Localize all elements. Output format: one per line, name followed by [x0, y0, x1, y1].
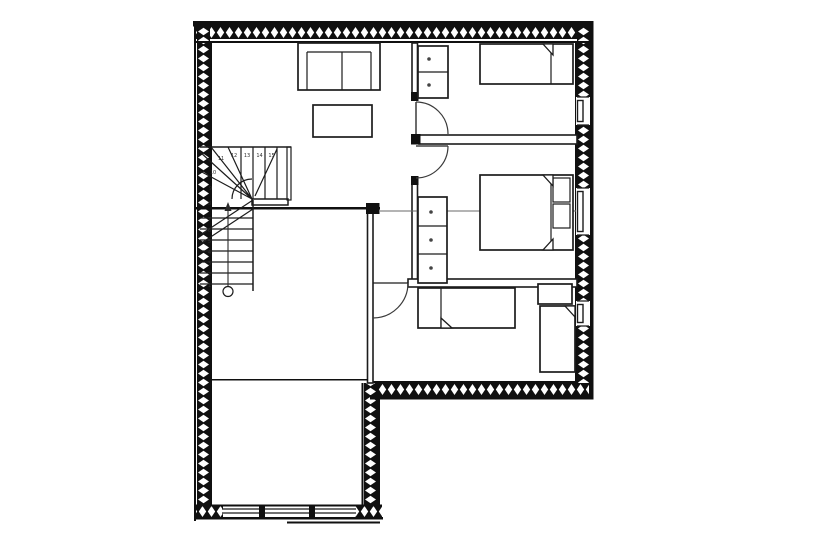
- bedroom-1-furniture: [418, 44, 573, 98]
- wardrobe-knob: [429, 238, 433, 242]
- step-number: 5: [208, 239, 211, 245]
- mid-lower-wall-hatch: [364, 383, 378, 506]
- stair-right-edge: [287, 147, 291, 200]
- bottom-right-wall-hatch: [372, 383, 589, 396]
- window-glazing: [578, 101, 584, 122]
- top-wall-outer-edge: [193, 21, 593, 27]
- double-bed: [480, 175, 573, 250]
- left-wall-outer-edge: [194, 21, 196, 521]
- sofa: [298, 43, 380, 90]
- step-number: 3: [208, 261, 211, 267]
- step-number: 11: [218, 156, 224, 162]
- bed-outline: [418, 288, 515, 328]
- door-swing-arc: [416, 102, 448, 134]
- lower-room-top-wall: [196, 207, 380, 210]
- bottom-right-wall-outer-edge: [370, 395, 594, 400]
- window: [576, 188, 590, 235]
- single-bed: [480, 44, 573, 84]
- step-number: 4: [208, 250, 211, 256]
- cabinet: [418, 46, 448, 98]
- bedroom-2-door: [416, 146, 448, 178]
- step-number: 13: [244, 153, 250, 159]
- wall-end-cap: [366, 203, 380, 214]
- bottom-window-glazing: [222, 509, 356, 513]
- wardrobe-knob: [429, 210, 433, 214]
- bottom-window-mullion: [309, 505, 315, 518]
- hallway-wall-lower: [412, 177, 418, 280]
- step-number: 7: [208, 217, 211, 223]
- bottom-window-corner-left-hatch: [196, 505, 223, 518]
- tall-wardrobe: [540, 306, 575, 372]
- bedroom-1-door: [416, 102, 448, 134]
- top-wall-inner-edge: [196, 41, 589, 43]
- wardrobe-outline: [540, 306, 575, 372]
- wardrobe-knob: [429, 266, 433, 270]
- bed-outline: [480, 175, 573, 250]
- living-room-furniture: [298, 43, 380, 137]
- bottom-window-corner-right-hatch: [355, 505, 382, 518]
- stair-landing-edge: [252, 199, 288, 205]
- step-number: 2: [208, 272, 211, 278]
- walkline-arrow: [225, 202, 232, 211]
- coffee-table: [313, 105, 372, 137]
- bottom-window-sill: [287, 522, 380, 524]
- mid-lower-wall-left-edge: [362, 383, 364, 506]
- lower-room-edge-line: [210, 379, 368, 381]
- bedroom-2-furniture: [418, 175, 573, 283]
- top-wall-hatch: [196, 26, 589, 39]
- window-glazing: [578, 305, 584, 323]
- mid-lower-wall-right-edge: [378, 395, 380, 506]
- step-number: 8: [208, 201, 211, 207]
- staircase: 1 2 3 4 5 6 7 8 9 10 11 12 13 14 15: [200, 147, 291, 297]
- bottom-room-door: [373, 283, 408, 318]
- shelf: [538, 284, 572, 304]
- door-jamb-cap: [411, 176, 419, 185]
- corridor-left-wall: [368, 204, 374, 383]
- step-number: 6: [208, 228, 211, 234]
- bed-outline: [480, 44, 573, 84]
- cabinet-knob: [427, 57, 431, 61]
- wardrobe: [418, 197, 447, 283]
- hallway-wall-upper: [412, 43, 418, 93]
- single-bed: [418, 288, 515, 328]
- bottom-window-bottom-line: [194, 517, 383, 520]
- step-number: 10: [210, 170, 216, 176]
- bottom-window-mullion: [259, 505, 265, 518]
- floor-plan-drawing: 1 2 3 4 5 6 7 8 9 10 11 12 13 14 15: [0, 0, 831, 555]
- step-number: 9: [209, 186, 212, 192]
- step-number: 1: [208, 283, 211, 289]
- bottom-window-top-line: [196, 505, 382, 507]
- window: [576, 301, 590, 326]
- step-number: 15: [268, 153, 274, 159]
- bottom-room-furniture: [418, 284, 575, 372]
- bedroom-divider-wall: [419, 135, 577, 144]
- door-swing-arc: [373, 283, 408, 318]
- step-number: 12: [231, 153, 237, 159]
- sofa-outline: [298, 43, 380, 90]
- step-number: 14: [256, 153, 262, 159]
- cabinet-knob: [427, 83, 431, 87]
- window: [576, 97, 590, 125]
- door-swing-arc: [416, 146, 448, 178]
- bottom-right-wall-inner-edge: [373, 381, 577, 383]
- window-glazing: [578, 192, 584, 232]
- door-jamb-cap: [411, 134, 421, 145]
- floor-plan: 1 2 3 4 5 6 7 8 9 10 11 12 13 14 15: [0, 0, 831, 555]
- walkline-start-circle: [223, 287, 233, 297]
